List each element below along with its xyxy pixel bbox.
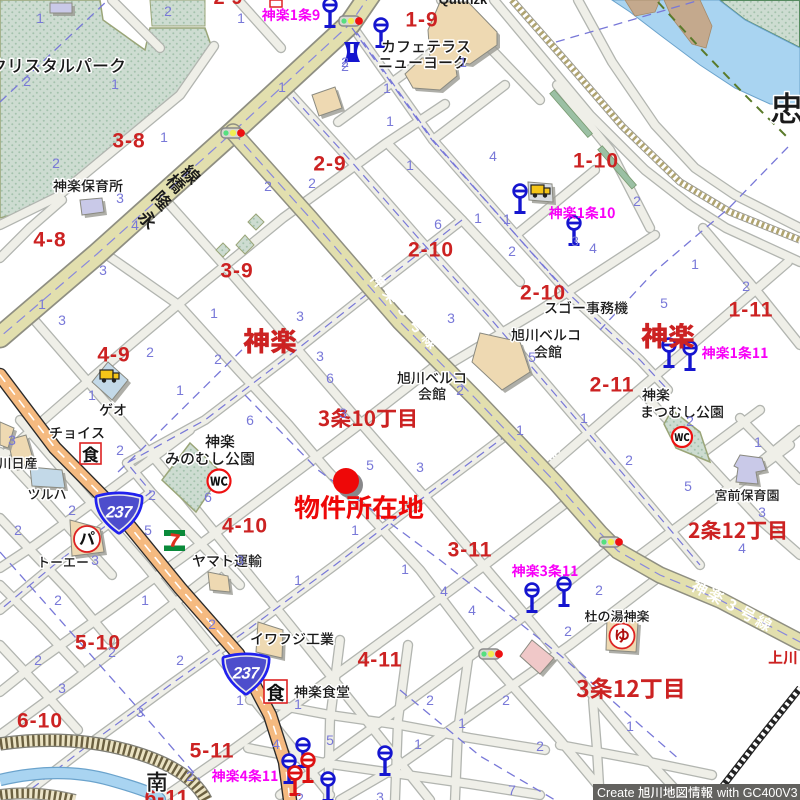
svg-text:4-9: 4-9 bbox=[97, 344, 130, 367]
svg-text:2: 2 bbox=[148, 487, 156, 503]
svg-text:2: 2 bbox=[164, 3, 172, 19]
svg-text:1: 1 bbox=[474, 210, 482, 226]
svg-text:4-10: 4-10 bbox=[222, 515, 268, 538]
svg-text:2: 2 bbox=[214, 351, 222, 367]
svg-text:2: 2 bbox=[564, 623, 572, 639]
svg-text:Quttnzk: Quttnzk bbox=[439, 0, 488, 7]
svg-text:1: 1 bbox=[386, 113, 394, 129]
svg-text:1: 1 bbox=[406, 157, 414, 173]
svg-text:1: 1 bbox=[278, 79, 286, 95]
svg-text:4: 4 bbox=[738, 540, 746, 556]
svg-text:4: 4 bbox=[468, 602, 476, 618]
svg-text:2: 2 bbox=[308, 175, 316, 191]
svg-text:with GC400V3: with GC400V3 bbox=[716, 786, 798, 800]
svg-text:5: 5 bbox=[660, 295, 668, 311]
svg-text:5: 5 bbox=[366, 457, 374, 473]
svg-text:1: 1 bbox=[580, 410, 588, 426]
svg-text:3: 3 bbox=[758, 504, 766, 520]
svg-text:1: 1 bbox=[691, 256, 699, 272]
svg-text:2: 2 bbox=[186, 768, 194, 784]
svg-text:4-8: 4-8 bbox=[33, 229, 66, 252]
svg-text:2: 2 bbox=[68, 502, 76, 518]
svg-text:3: 3 bbox=[116, 190, 124, 206]
svg-text:2: 2 bbox=[108, 644, 116, 660]
svg-text:2: 2 bbox=[625, 452, 633, 468]
svg-text:2-10: 2-10 bbox=[520, 282, 566, 305]
svg-text:2: 2 bbox=[686, 413, 694, 429]
svg-text:4: 4 bbox=[489, 148, 497, 164]
svg-text:2: 2 bbox=[296, 790, 304, 800]
svg-text:3: 3 bbox=[58, 680, 66, 696]
svg-text:2: 2 bbox=[23, 73, 31, 89]
svg-text:2: 2 bbox=[14, 522, 22, 538]
svg-text:3: 3 bbox=[58, 312, 66, 328]
svg-text:2-9: 2-9 bbox=[313, 153, 346, 176]
svg-text:2-11: 2-11 bbox=[590, 374, 635, 397]
svg-text:4-11: 4-11 bbox=[358, 649, 403, 672]
svg-text:3: 3 bbox=[136, 704, 144, 720]
svg-text:4: 4 bbox=[131, 217, 139, 233]
svg-text:2: 2 bbox=[176, 652, 184, 668]
svg-text:2-10: 2-10 bbox=[408, 239, 454, 262]
svg-text:3: 3 bbox=[339, 405, 347, 421]
svg-text:3: 3 bbox=[571, 233, 579, 249]
svg-text:1: 1 bbox=[516, 422, 524, 438]
svg-text:3: 3 bbox=[376, 789, 384, 800]
svg-text:2-9: 2-9 bbox=[214, 0, 243, 9]
svg-text:1: 1 bbox=[88, 387, 96, 403]
svg-text:1: 1 bbox=[237, 10, 245, 26]
svg-text:2: 2 bbox=[34, 652, 42, 668]
svg-text:3: 3 bbox=[447, 310, 455, 326]
svg-text:1: 1 bbox=[503, 211, 511, 227]
svg-text:2: 2 bbox=[536, 738, 544, 754]
svg-text:1: 1 bbox=[160, 129, 168, 145]
svg-text:1: 1 bbox=[294, 572, 302, 588]
svg-text:2: 2 bbox=[264, 178, 272, 194]
svg-text:1: 1 bbox=[36, 10, 44, 26]
svg-text:3: 3 bbox=[296, 308, 304, 324]
svg-text:1: 1 bbox=[236, 692, 244, 708]
svg-text:4: 4 bbox=[589, 240, 597, 256]
svg-text:3: 3 bbox=[236, 552, 244, 568]
svg-text:2: 2 bbox=[208, 616, 216, 632]
svg-text:2: 2 bbox=[502, 692, 510, 708]
svg-text:Create: Create bbox=[597, 786, 635, 800]
svg-text:3: 3 bbox=[8, 432, 16, 448]
svg-text:3-9: 3-9 bbox=[220, 260, 253, 283]
svg-text:1: 1 bbox=[141, 592, 149, 608]
svg-text:4: 4 bbox=[272, 736, 280, 752]
svg-text:237: 237 bbox=[231, 664, 261, 683]
svg-text:3: 3 bbox=[416, 459, 424, 475]
svg-text:1: 1 bbox=[401, 561, 409, 577]
svg-text:1-9: 1-9 bbox=[405, 9, 438, 32]
svg-text:5-11: 5-11 bbox=[190, 740, 235, 763]
svg-text:237: 237 bbox=[104, 503, 134, 522]
svg-text:3-11: 3-11 bbox=[448, 539, 493, 562]
svg-text:2: 2 bbox=[116, 442, 124, 458]
svg-text:1: 1 bbox=[351, 522, 359, 538]
svg-text:5: 5 bbox=[144, 522, 152, 538]
svg-text:6-10: 6-10 bbox=[17, 710, 63, 733]
svg-text:5: 5 bbox=[528, 349, 536, 365]
svg-text:1: 1 bbox=[459, 54, 467, 70]
svg-text:2: 2 bbox=[54, 592, 62, 608]
svg-text:5: 5 bbox=[326, 732, 334, 748]
svg-text:1: 1 bbox=[38, 296, 46, 312]
svg-text:2: 2 bbox=[456, 382, 464, 398]
svg-text:3: 3 bbox=[99, 262, 107, 278]
svg-text:1: 1 bbox=[754, 434, 762, 450]
svg-text:1-11: 1-11 bbox=[729, 299, 774, 322]
svg-text:6: 6 bbox=[326, 370, 334, 386]
svg-text:1: 1 bbox=[458, 715, 466, 731]
svg-text:3: 3 bbox=[91, 552, 99, 568]
svg-text:4: 4 bbox=[440, 583, 448, 599]
svg-text:2: 2 bbox=[633, 193, 641, 209]
svg-text:1: 1 bbox=[414, 736, 422, 752]
svg-text:3: 3 bbox=[316, 348, 324, 364]
svg-text:1: 1 bbox=[111, 76, 119, 92]
svg-text:1: 1 bbox=[294, 696, 302, 712]
svg-text:1: 1 bbox=[383, 80, 391, 96]
svg-text:2: 2 bbox=[426, 692, 434, 708]
svg-text:2: 2 bbox=[52, 155, 60, 171]
svg-text:7: 7 bbox=[508, 782, 516, 798]
svg-text:2: 2 bbox=[595, 582, 603, 598]
svg-text:6: 6 bbox=[204, 489, 212, 505]
svg-text:1: 1 bbox=[626, 718, 634, 734]
svg-text:1-10: 1-10 bbox=[573, 150, 619, 173]
svg-text:1: 1 bbox=[176, 382, 184, 398]
svg-text:6: 6 bbox=[246, 412, 254, 428]
svg-text:1: 1 bbox=[210, 305, 218, 321]
svg-text:5: 5 bbox=[684, 478, 692, 494]
svg-text:2: 2 bbox=[146, 344, 154, 360]
svg-text:2: 2 bbox=[341, 54, 349, 70]
svg-text:2: 2 bbox=[508, 243, 516, 259]
svg-text:3-8: 3-8 bbox=[112, 130, 145, 153]
svg-text:6: 6 bbox=[434, 216, 442, 232]
svg-text:2: 2 bbox=[742, 278, 750, 294]
